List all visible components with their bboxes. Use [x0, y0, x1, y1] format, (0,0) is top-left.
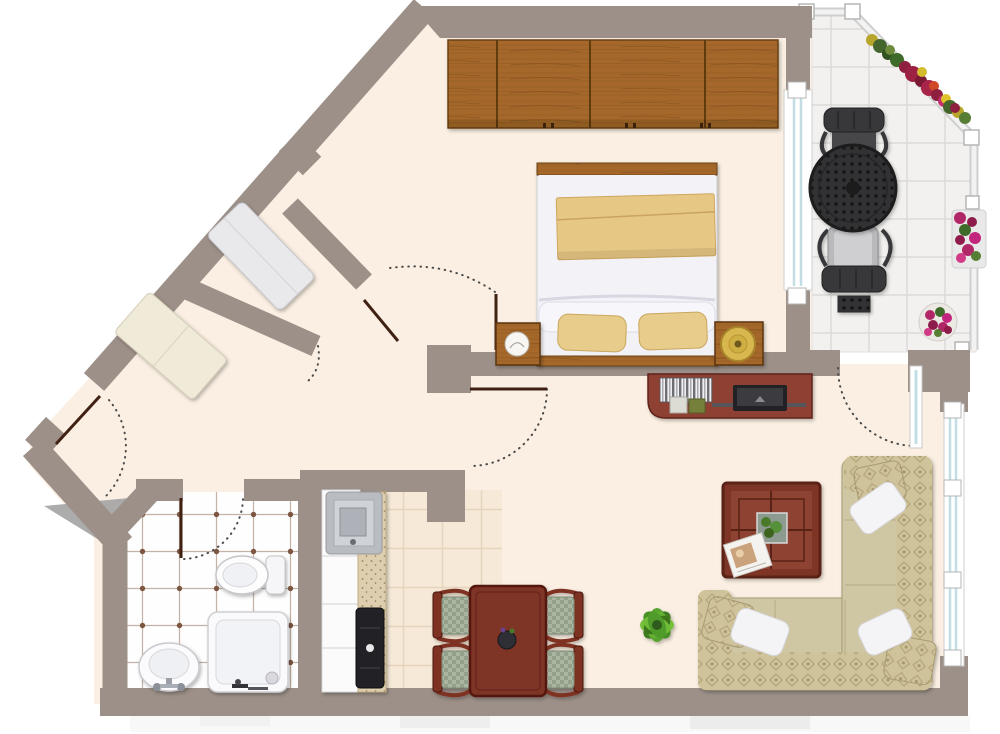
- floor-plan: [0, 0, 1000, 734]
- box-white: [670, 397, 687, 413]
- folded-blanket: [556, 194, 716, 260]
- wall-balcony-left: [810, 350, 840, 376]
- nightstand-left: [496, 323, 540, 365]
- bedroom-balcony-window: [784, 82, 812, 304]
- pillow-right: [638, 312, 707, 350]
- stove: [356, 608, 384, 688]
- dining-set: [433, 586, 583, 696]
- washbasin: [139, 643, 199, 691]
- nightstand-right: [715, 322, 763, 365]
- table-lamp: [505, 332, 529, 356]
- balcony-door-leaf: [910, 366, 922, 448]
- coffee-table: [723, 483, 820, 577]
- flower-box-rail: [952, 210, 986, 268]
- flower-pot: [919, 303, 957, 341]
- kitchen-furniture: [322, 490, 386, 692]
- dining-chair: [433, 645, 473, 695]
- vase: [498, 631, 516, 649]
- media-console: [648, 374, 812, 418]
- box-green: [689, 399, 705, 413]
- chair-base: [838, 296, 870, 312]
- sink-unit: [326, 492, 382, 554]
- living-room-side-window: [944, 402, 964, 666]
- dining-chair: [543, 591, 583, 641]
- shower-tray: [208, 612, 288, 692]
- wall-kitchen-stub: [427, 470, 465, 522]
- wardrobe: [448, 40, 778, 128]
- floor-plan-page: [0, 0, 1000, 734]
- bottom-reflection: [130, 716, 970, 732]
- wall-top: [412, 6, 812, 38]
- pillow-left: [557, 314, 626, 352]
- double-bed: [537, 163, 717, 366]
- dining-chair: [543, 645, 583, 695]
- balcony-table: [810, 145, 896, 231]
- wall-pillar: [427, 345, 471, 393]
- dining-chair: [433, 591, 473, 641]
- toilet: [216, 556, 285, 594]
